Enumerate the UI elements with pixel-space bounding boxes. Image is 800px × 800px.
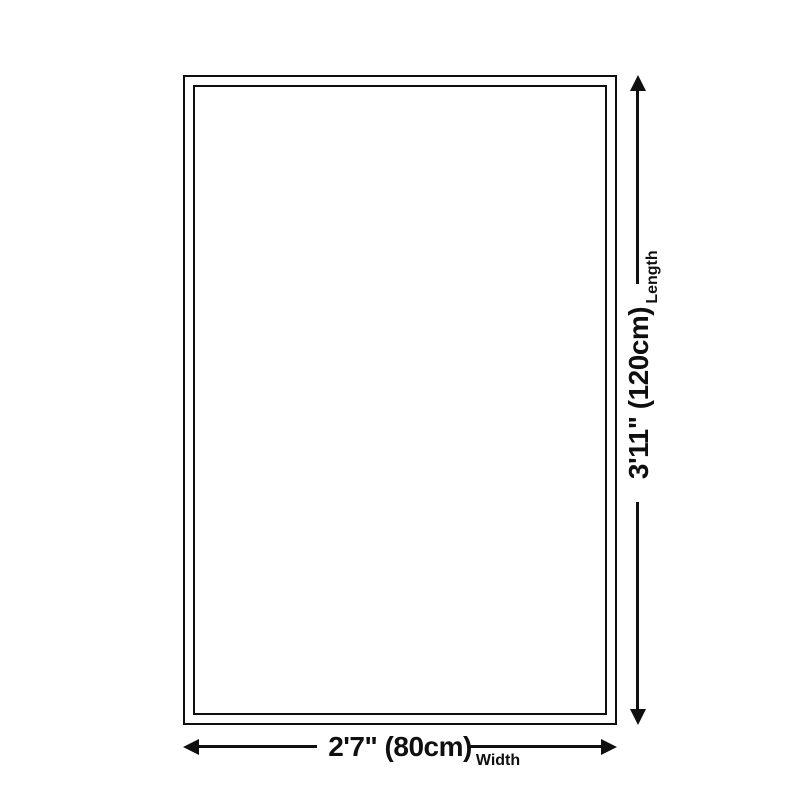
- length-value: 3'11" (120cm): [625, 307, 653, 479]
- length-dimension-line-top: [636, 91, 639, 284]
- arrow-up-icon: [630, 75, 646, 91]
- length-label: Length: [645, 250, 661, 303]
- product-outline: [183, 75, 617, 725]
- arrow-right-icon: [601, 739, 617, 755]
- dimension-diagram: 3'11" (120cm) Length 2'7" (80cm) Width: [0, 0, 800, 800]
- width-value: 2'7" (80cm): [328, 733, 472, 761]
- width-dimension-line-right: [470, 745, 604, 748]
- width-dimension-line-left: [198, 745, 317, 748]
- arrow-down-icon: [630, 709, 646, 725]
- width-label: Width: [476, 753, 520, 769]
- length-dimension-line-bottom: [636, 502, 639, 711]
- product-outline-inner-border: [193, 85, 607, 715]
- arrow-left-icon: [183, 739, 199, 755]
